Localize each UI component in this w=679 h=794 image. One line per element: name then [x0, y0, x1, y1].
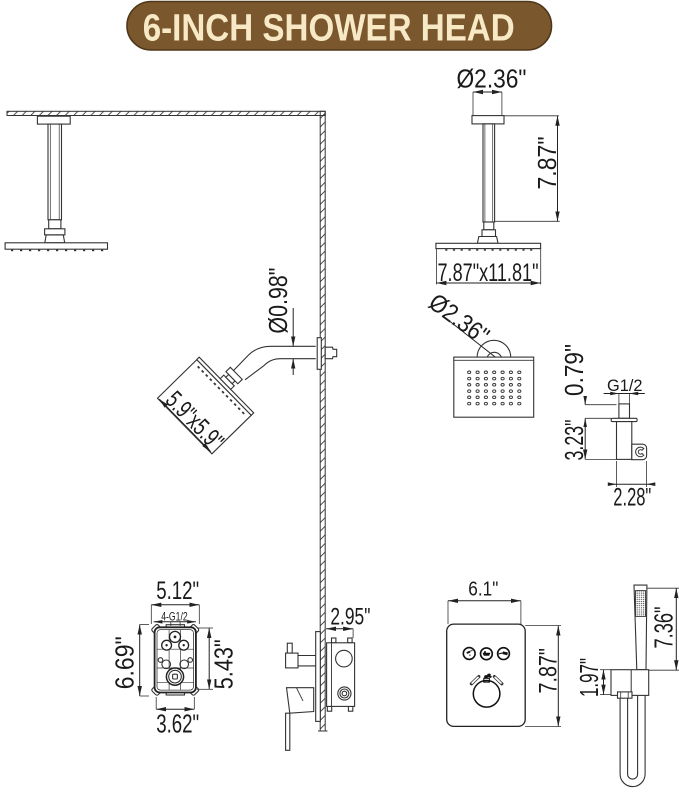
svg-text:2.28": 2.28": [613, 484, 651, 512]
svg-text:5.43": 5.43": [209, 639, 239, 689]
svg-text:6-INCH SHOWER HEAD: 6-INCH SHOWER HEAD: [143, 8, 515, 50]
svg-text:Ø0.98": Ø0.98": [263, 268, 293, 334]
svg-text:3.62": 3.62": [156, 709, 199, 739]
svg-text:1.97": 1.97": [574, 658, 604, 697]
svg-text:6.1": 6.1": [468, 578, 498, 600]
svg-text:7.87"x11.81": 7.87"x11.81": [438, 259, 539, 287]
svg-text:7.36": 7.36": [649, 607, 679, 649]
svg-text:2.95": 2.95": [330, 604, 370, 631]
svg-text:5.12": 5.12": [156, 577, 199, 605]
svg-text:3.23": 3.23": [559, 420, 589, 461]
svg-text:7.87": 7.87": [532, 137, 562, 190]
svg-text:6.69": 6.69": [110, 636, 140, 689]
svg-text:Ø2.36": Ø2.36": [423, 288, 494, 350]
svg-text:Ø2.36": Ø2.36": [457, 64, 527, 94]
svg-text:0.79": 0.79": [559, 344, 589, 396]
